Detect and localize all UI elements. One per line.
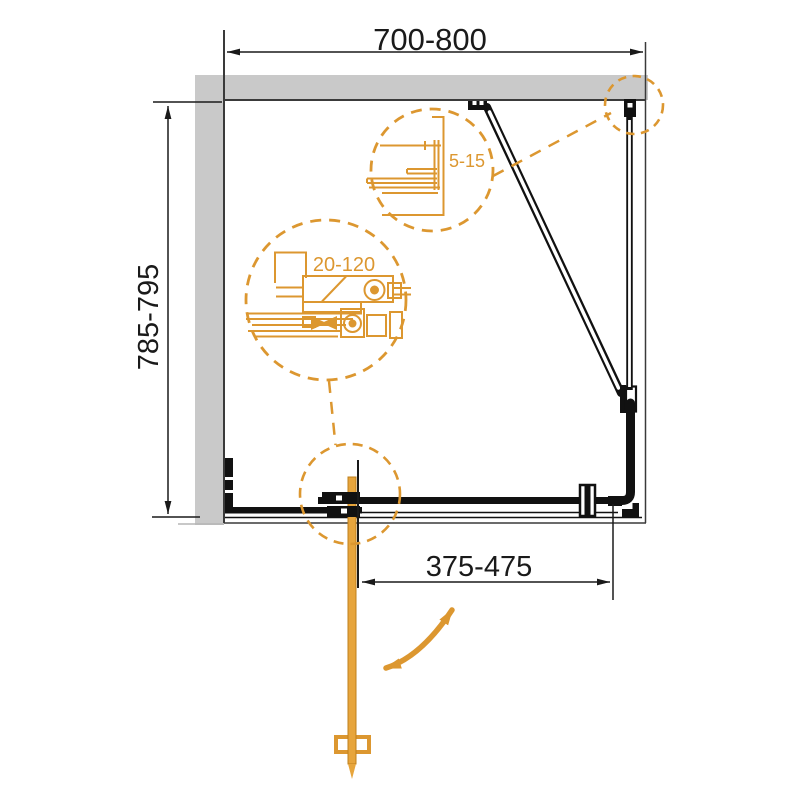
handle-bar — [348, 477, 356, 764]
wall-gap-label: 5-15 — [449, 151, 485, 171]
width-dimension-label: 700-800 — [373, 22, 487, 57]
side-panel-profile — [613, 99, 636, 501]
wall-profile-bracket — [225, 458, 233, 512]
right-guide-bracket — [580, 485, 595, 516]
door-opening-dimension-label: 375-475 — [426, 551, 532, 583]
wall-top — [195, 75, 648, 100]
detail-circle-adjustment — [246, 220, 406, 380]
detail-adjustment-profile: 20-120 — [246, 253, 411, 339]
shower-enclosure-plan: 700-800 785-795 375-475 5-15 — [0, 0, 800, 800]
door-opening-dimension: 375-475 — [358, 460, 613, 600]
wall-left — [178, 75, 224, 525]
plan-svg: 700-800 785-795 375-475 5-15 — [0, 0, 800, 800]
leader-line-bottom — [329, 381, 336, 445]
corner-post-profile — [613, 403, 631, 501]
handle-bar-tip — [348, 764, 356, 779]
corner-hook-tab — [633, 503, 640, 510]
corner-hook — [622, 509, 639, 517]
door-swing-arrow — [386, 610, 452, 668]
top-wall-bracket — [624, 99, 636, 117]
depth-dimension-label: 785-795 — [133, 264, 165, 370]
adjustment-label: 20-120 — [313, 254, 375, 276]
enclosure-outline — [224, 30, 646, 523]
bottom-rail — [225, 458, 642, 518]
door-panel — [468, 101, 636, 413]
width-dimension: 700-800 — [227, 22, 643, 57]
detail-circles — [246, 76, 663, 544]
